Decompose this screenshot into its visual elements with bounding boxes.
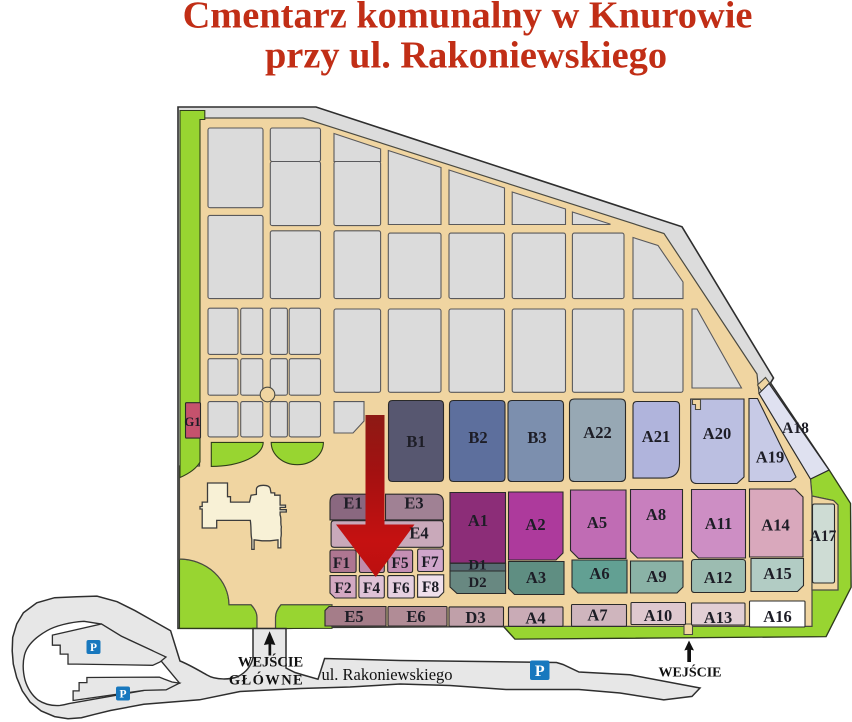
- svg-text:A5: A5: [587, 513, 607, 532]
- svg-text:A20: A20: [703, 424, 731, 443]
- svg-text:F5: F5: [391, 555, 408, 572]
- svg-text:ul. Rakoniewskiego: ul. Rakoniewskiego: [321, 665, 452, 684]
- svg-text:P: P: [90, 642, 97, 654]
- svg-text:D3: D3: [465, 608, 485, 627]
- svg-text:A17: A17: [810, 528, 837, 545]
- svg-text:A11: A11: [705, 514, 733, 533]
- svg-text:A14: A14: [761, 516, 789, 535]
- svg-text:D1: D1: [468, 558, 486, 574]
- svg-text:F1: F1: [333, 555, 350, 572]
- svg-text:A10: A10: [644, 606, 672, 625]
- svg-text:B2: B2: [468, 428, 487, 447]
- svg-text:E1: E1: [343, 494, 362, 513]
- svg-text:Cmentarz komunalny w Knurowie: Cmentarz komunalny w Knurowie: [183, 0, 753, 37]
- svg-text:A15: A15: [763, 564, 791, 583]
- svg-text:A18: A18: [782, 420, 809, 437]
- svg-text:A22: A22: [583, 423, 611, 442]
- svg-text:F7: F7: [421, 554, 438, 571]
- svg-text:F4: F4: [363, 580, 380, 597]
- svg-text:A21: A21: [642, 427, 670, 446]
- svg-text:P: P: [535, 663, 545, 680]
- svg-text:A12: A12: [704, 568, 732, 587]
- svg-text:A16: A16: [763, 607, 791, 626]
- svg-text:E3: E3: [404, 494, 423, 513]
- svg-text:A4: A4: [525, 609, 545, 628]
- svg-text:A13: A13: [704, 608, 732, 627]
- svg-text:A1: A1: [468, 511, 488, 530]
- svg-text:A2: A2: [525, 515, 545, 534]
- svg-text:F2: F2: [334, 580, 351, 597]
- svg-text:przy ul. Rakoniewskiego: przy ul. Rakoniewskiego: [265, 35, 667, 77]
- svg-text:A3: A3: [526, 568, 546, 587]
- svg-text:E5: E5: [344, 607, 363, 626]
- svg-text:A7: A7: [587, 606, 607, 625]
- svg-text:F8: F8: [422, 579, 439, 596]
- svg-text:WEJŚCIE: WEJŚCIE: [658, 664, 721, 681]
- svg-text:E6: E6: [406, 607, 425, 626]
- svg-text:B3: B3: [527, 428, 546, 447]
- svg-text:B1: B1: [406, 432, 425, 451]
- svg-text:D2: D2: [468, 575, 486, 591]
- svg-text:F6: F6: [392, 580, 409, 597]
- svg-text:P: P: [119, 689, 126, 701]
- svg-text:E4: E4: [409, 524, 428, 543]
- svg-text:A9: A9: [646, 567, 666, 586]
- svg-text:A8: A8: [646, 505, 666, 524]
- svg-text:A19: A19: [756, 448, 784, 467]
- svg-text:WEJŚCIE: WEJŚCIE: [238, 654, 303, 671]
- svg-text:GŁÓWNE: GŁÓWNE: [229, 672, 304, 689]
- svg-text:A6: A6: [589, 564, 609, 583]
- svg-text:G1: G1: [184, 414, 201, 429]
